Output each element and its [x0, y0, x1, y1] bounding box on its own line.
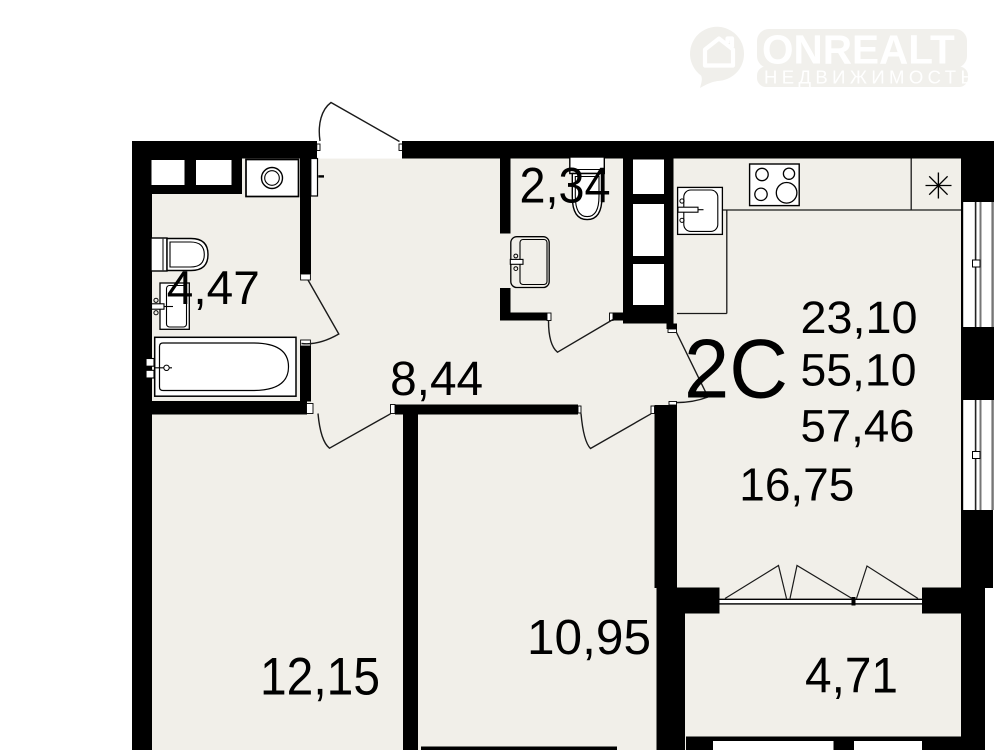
svg-text:4,47: 4,47	[167, 262, 260, 315]
svg-text:12,15: 12,15	[260, 648, 380, 707]
svg-text:10,95: 10,95	[527, 610, 651, 665]
svg-text:23,10: 23,10	[801, 292, 918, 343]
svg-text:НЕДВИЖИМОСТЬ: НЕДВИЖИМОСТЬ	[764, 67, 977, 88]
svg-text:55,10: 55,10	[801, 345, 917, 396]
svg-text:57,46: 57,46	[801, 401, 915, 452]
svg-text:2С: 2С	[684, 322, 788, 416]
svg-text:4,71: 4,71	[805, 648, 898, 704]
svg-text:16,75: 16,75	[739, 459, 854, 511]
svg-text:8,44: 8,44	[390, 352, 483, 406]
svg-text:2,34: 2,34	[520, 158, 611, 214]
